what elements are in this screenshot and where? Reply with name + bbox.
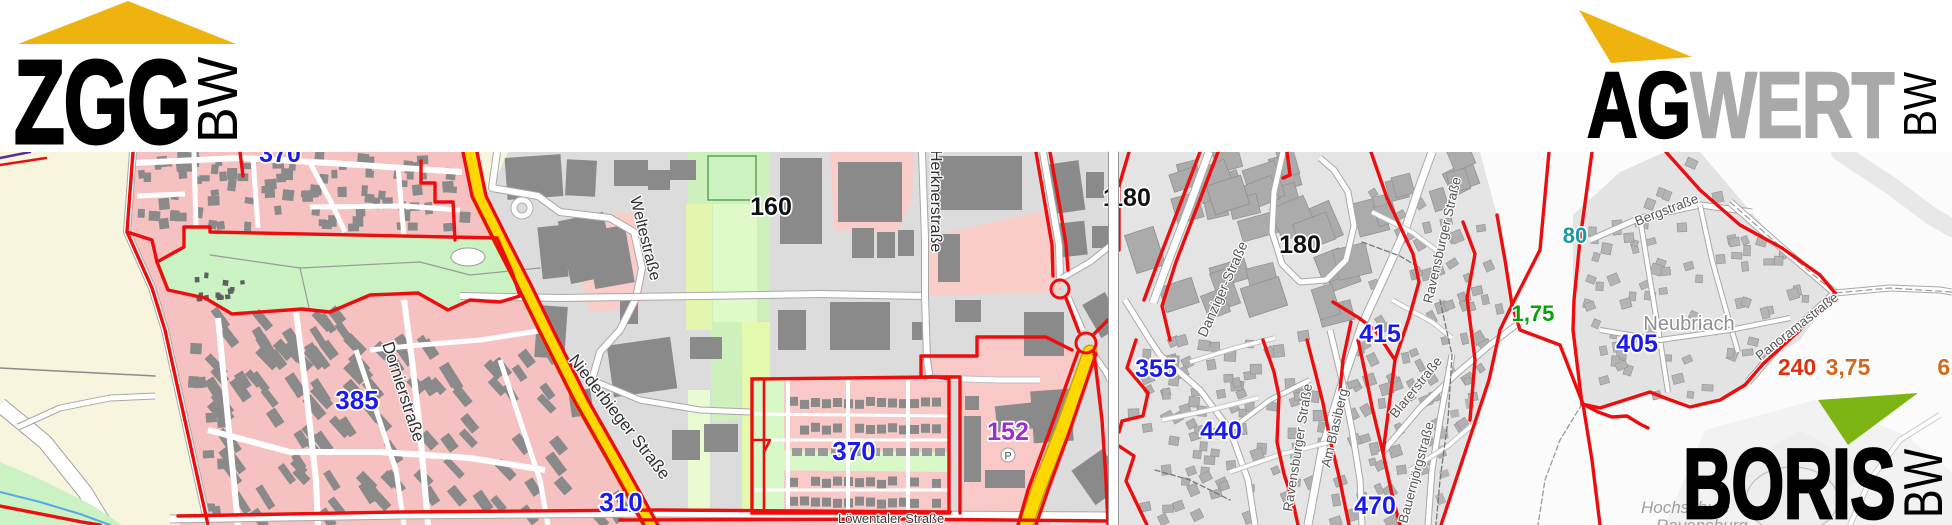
svg-text:BORIS: BORIS bbox=[1683, 428, 1895, 525]
svg-text:Neubriach: Neubriach bbox=[1643, 313, 1734, 335]
svg-text:385: 385 bbox=[335, 385, 378, 415]
svg-text:370: 370 bbox=[832, 436, 875, 466]
svg-text:240: 240 bbox=[1778, 354, 1816, 380]
svg-text:Löwentaler Straße: Löwentaler Straße bbox=[838, 511, 944, 525]
svg-text:BW: BW bbox=[185, 57, 249, 143]
svg-text:P: P bbox=[1004, 451, 1011, 463]
svg-text:180: 180 bbox=[1279, 231, 1321, 259]
svg-text:355: 355 bbox=[1135, 355, 1177, 383]
svg-text:1,75: 1,75 bbox=[1512, 301, 1555, 326]
svg-text:AGWERT: AGWERT bbox=[1587, 53, 1894, 157]
svg-text:6,: 6, bbox=[1937, 354, 1952, 380]
svg-text:152: 152 bbox=[987, 418, 1029, 446]
svg-text:310: 310 bbox=[599, 487, 642, 517]
svg-text:415: 415 bbox=[1359, 320, 1401, 348]
svg-text:3,75: 3,75 bbox=[1826, 354, 1871, 380]
svg-text:160: 160 bbox=[750, 193, 792, 221]
svg-text:80: 80 bbox=[1563, 223, 1587, 248]
svg-text:Herknerstraße: Herknerstraße bbox=[927, 150, 944, 252]
svg-text:470: 470 bbox=[1354, 492, 1396, 520]
svg-text:BW: BW bbox=[1893, 449, 1952, 518]
svg-text:ZGG: ZGG bbox=[14, 35, 190, 168]
svg-text:BW: BW bbox=[1896, 72, 1947, 137]
svg-text:440: 440 bbox=[1200, 417, 1242, 445]
